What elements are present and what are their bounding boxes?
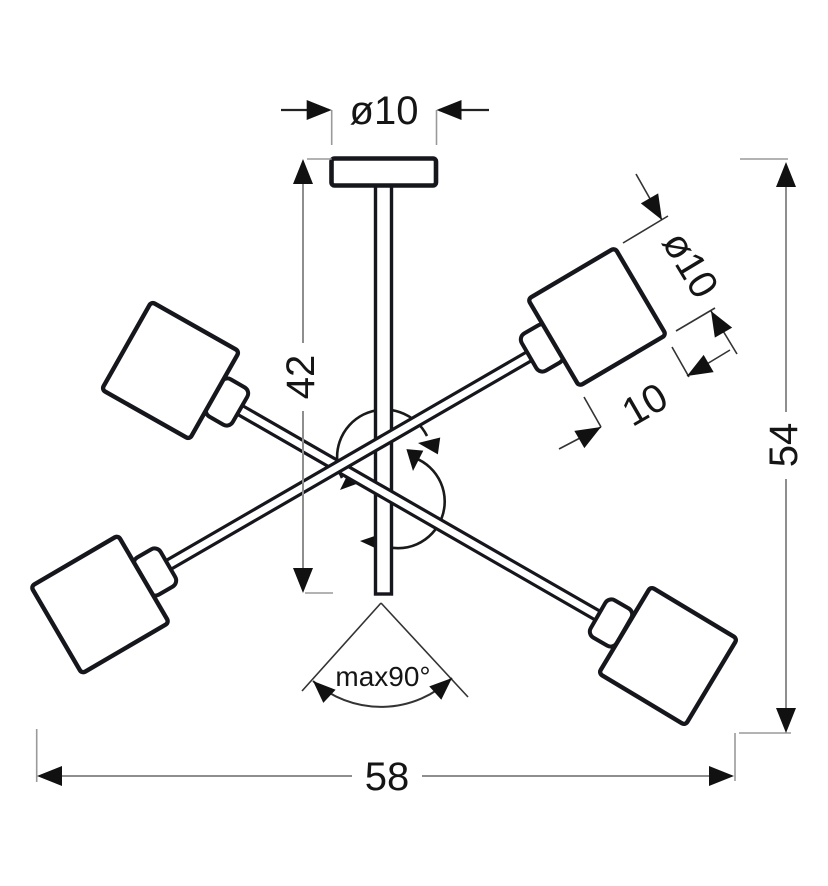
arm-rod: [168, 366, 671, 661]
arrowhead-icon: [702, 306, 732, 338]
arrowhead-icon: [429, 671, 458, 699]
dim-canopy-diameter: ø10: [281, 89, 489, 145]
total-width-label: 58: [365, 755, 410, 799]
shade-height-label: 10: [615, 375, 676, 435]
extension-line: [584, 397, 601, 427]
arrowhead-icon: [437, 100, 462, 120]
arrowhead-icon: [293, 568, 313, 593]
dim-total-width: 58: [37, 729, 735, 799]
arrowhead-icon: [307, 674, 336, 703]
dim-max-tilt: max90°: [302, 603, 468, 707]
arrowhead-icon: [293, 159, 313, 184]
arrowhead-icon: [776, 162, 796, 187]
rod-drop-label: 42: [279, 355, 323, 400]
arrowhead-icon: [574, 418, 606, 448]
arrowhead-icon: [641, 193, 671, 225]
total-drop-label: 54: [762, 423, 806, 468]
extension-line: [672, 347, 689, 377]
arrowhead-icon: [682, 355, 714, 385]
technical-drawing-page: max90° ø10 42 54 58: [0, 0, 828, 886]
ceiling-rod: [376, 183, 392, 594]
arrowhead-icon: [709, 766, 734, 786]
dim-rod-drop: 42: [279, 159, 333, 593]
ceiling-canopy-plate: [332, 159, 437, 186]
canopy-diameter-label: ø10: [350, 89, 419, 133]
shade-diameter-label: ø10: [653, 224, 726, 306]
extension-line: [676, 308, 715, 331]
lamp-dimension-drawing: max90° ø10 42 54 58: [0, 0, 828, 886]
arrowhead-icon: [307, 100, 332, 120]
max-tilt-label: max90°: [335, 661, 430, 692]
arrowhead-icon: [37, 766, 62, 786]
dim-total-drop: 54: [739, 159, 806, 733]
arrowhead-icon: [776, 708, 796, 733]
arm-upperleft-lowerright: [168, 366, 671, 661]
